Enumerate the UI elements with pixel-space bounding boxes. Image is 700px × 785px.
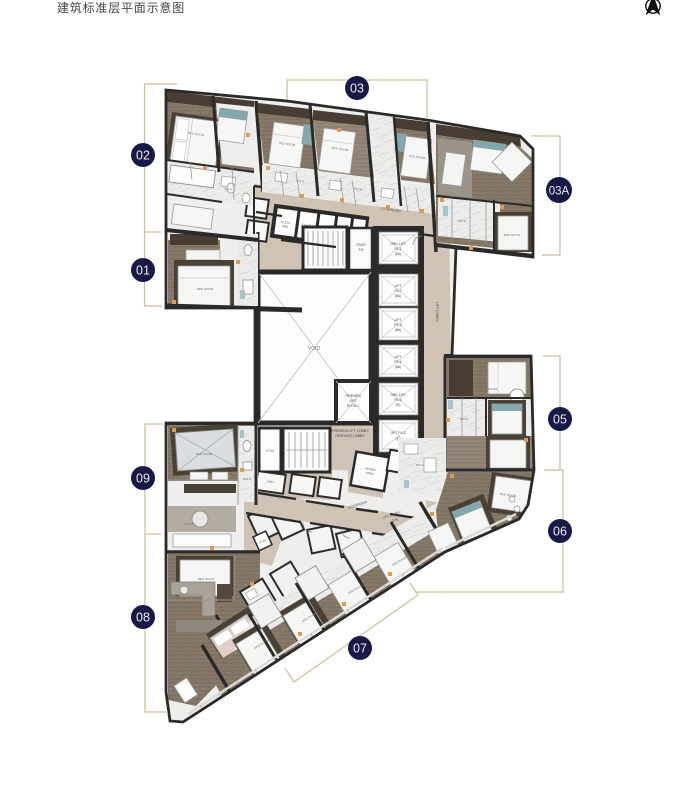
svg-text:PL-5: PL-5 — [394, 398, 401, 402]
svg-text:09: 09 — [136, 472, 150, 486]
svg-text:P/5: P/5 — [359, 248, 364, 252]
svg-text:BED ROOM: BED ROOM — [196, 452, 213, 456]
svg-text:LIFT: LIFT — [395, 318, 402, 322]
svg-text:BED ROOM: BED ROOM — [479, 172, 496, 176]
svg-text:LIFT LOBBY: LIFT LOBBY — [435, 302, 439, 323]
svg-text:BATH: BATH — [460, 417, 468, 421]
svg-text:BED ROOM: BED ROOM — [197, 287, 214, 291]
svg-text:(H): (H) — [396, 403, 401, 407]
svg-text:PL-4: PL-4 — [394, 360, 401, 364]
svg-text:M.BATH: M.BATH — [184, 522, 195, 526]
svg-text:LIFT: LIFT — [350, 399, 357, 403]
svg-text:PL-3: PL-3 — [394, 323, 401, 327]
svg-text:VOID: VOID — [266, 449, 275, 453]
svg-text:FIREMEN LIFT LOBBY: FIREMEN LIFT LOBBY — [331, 429, 369, 433]
svg-text:LIFT: LIFT — [395, 355, 402, 359]
svg-text:BATH: BATH — [416, 463, 424, 467]
svg-text:ORD LIFT: ORD LIFT — [390, 242, 405, 246]
svg-text:(5A): (5A) — [395, 328, 401, 332]
svg-text:03A: 03A — [549, 186, 570, 198]
svg-text:(5A): (5A) — [395, 294, 401, 298]
svg-text:02: 02 — [136, 149, 150, 163]
svg-text:06: 06 — [553, 525, 567, 539]
svg-text:01: 01 — [136, 264, 150, 278]
svg-text:(5A): (5A) — [395, 365, 401, 369]
svg-text:VOID: VOID — [308, 346, 321, 352]
svg-text:PL-1: PL-1 — [394, 247, 401, 251]
svg-text:PL-2: PL-2 — [394, 289, 401, 293]
svg-text:BATH: BATH — [458, 219, 466, 223]
svg-text:BED ROOM: BED ROOM — [481, 387, 498, 391]
svg-text:LIFT PL-6: LIFT PL-6 — [390, 431, 405, 435]
svg-text:ORD LIFT: ORD LIFT — [390, 393, 405, 397]
svg-text:LIFT: LIFT — [395, 284, 402, 288]
svg-text:(5A): (5A) — [395, 252, 401, 256]
svg-text:/SERVICE LOBBY: /SERVICE LOBBY — [335, 434, 365, 438]
svg-text:BED ROOM: BED ROOM — [198, 577, 215, 581]
svg-text:BED ROOM: BED ROOM — [504, 233, 521, 237]
svg-text:03: 03 — [350, 82, 364, 96]
svg-text:STAIR: STAIR — [356, 243, 366, 247]
svg-text:PL/TA-7: PL/TA-7 — [347, 404, 359, 408]
svg-text:FIREMEN: FIREMEN — [345, 394, 361, 398]
svg-text:建筑标准层平面示意图: 建筑标准层平面示意图 — [57, 0, 185, 15]
svg-text:(5A): (5A) — [282, 224, 288, 229]
svg-text:07: 07 — [353, 642, 367, 656]
svg-text:08: 08 — [136, 611, 150, 625]
svg-text:BATH: BATH — [243, 477, 251, 481]
svg-text:05: 05 — [553, 413, 567, 427]
